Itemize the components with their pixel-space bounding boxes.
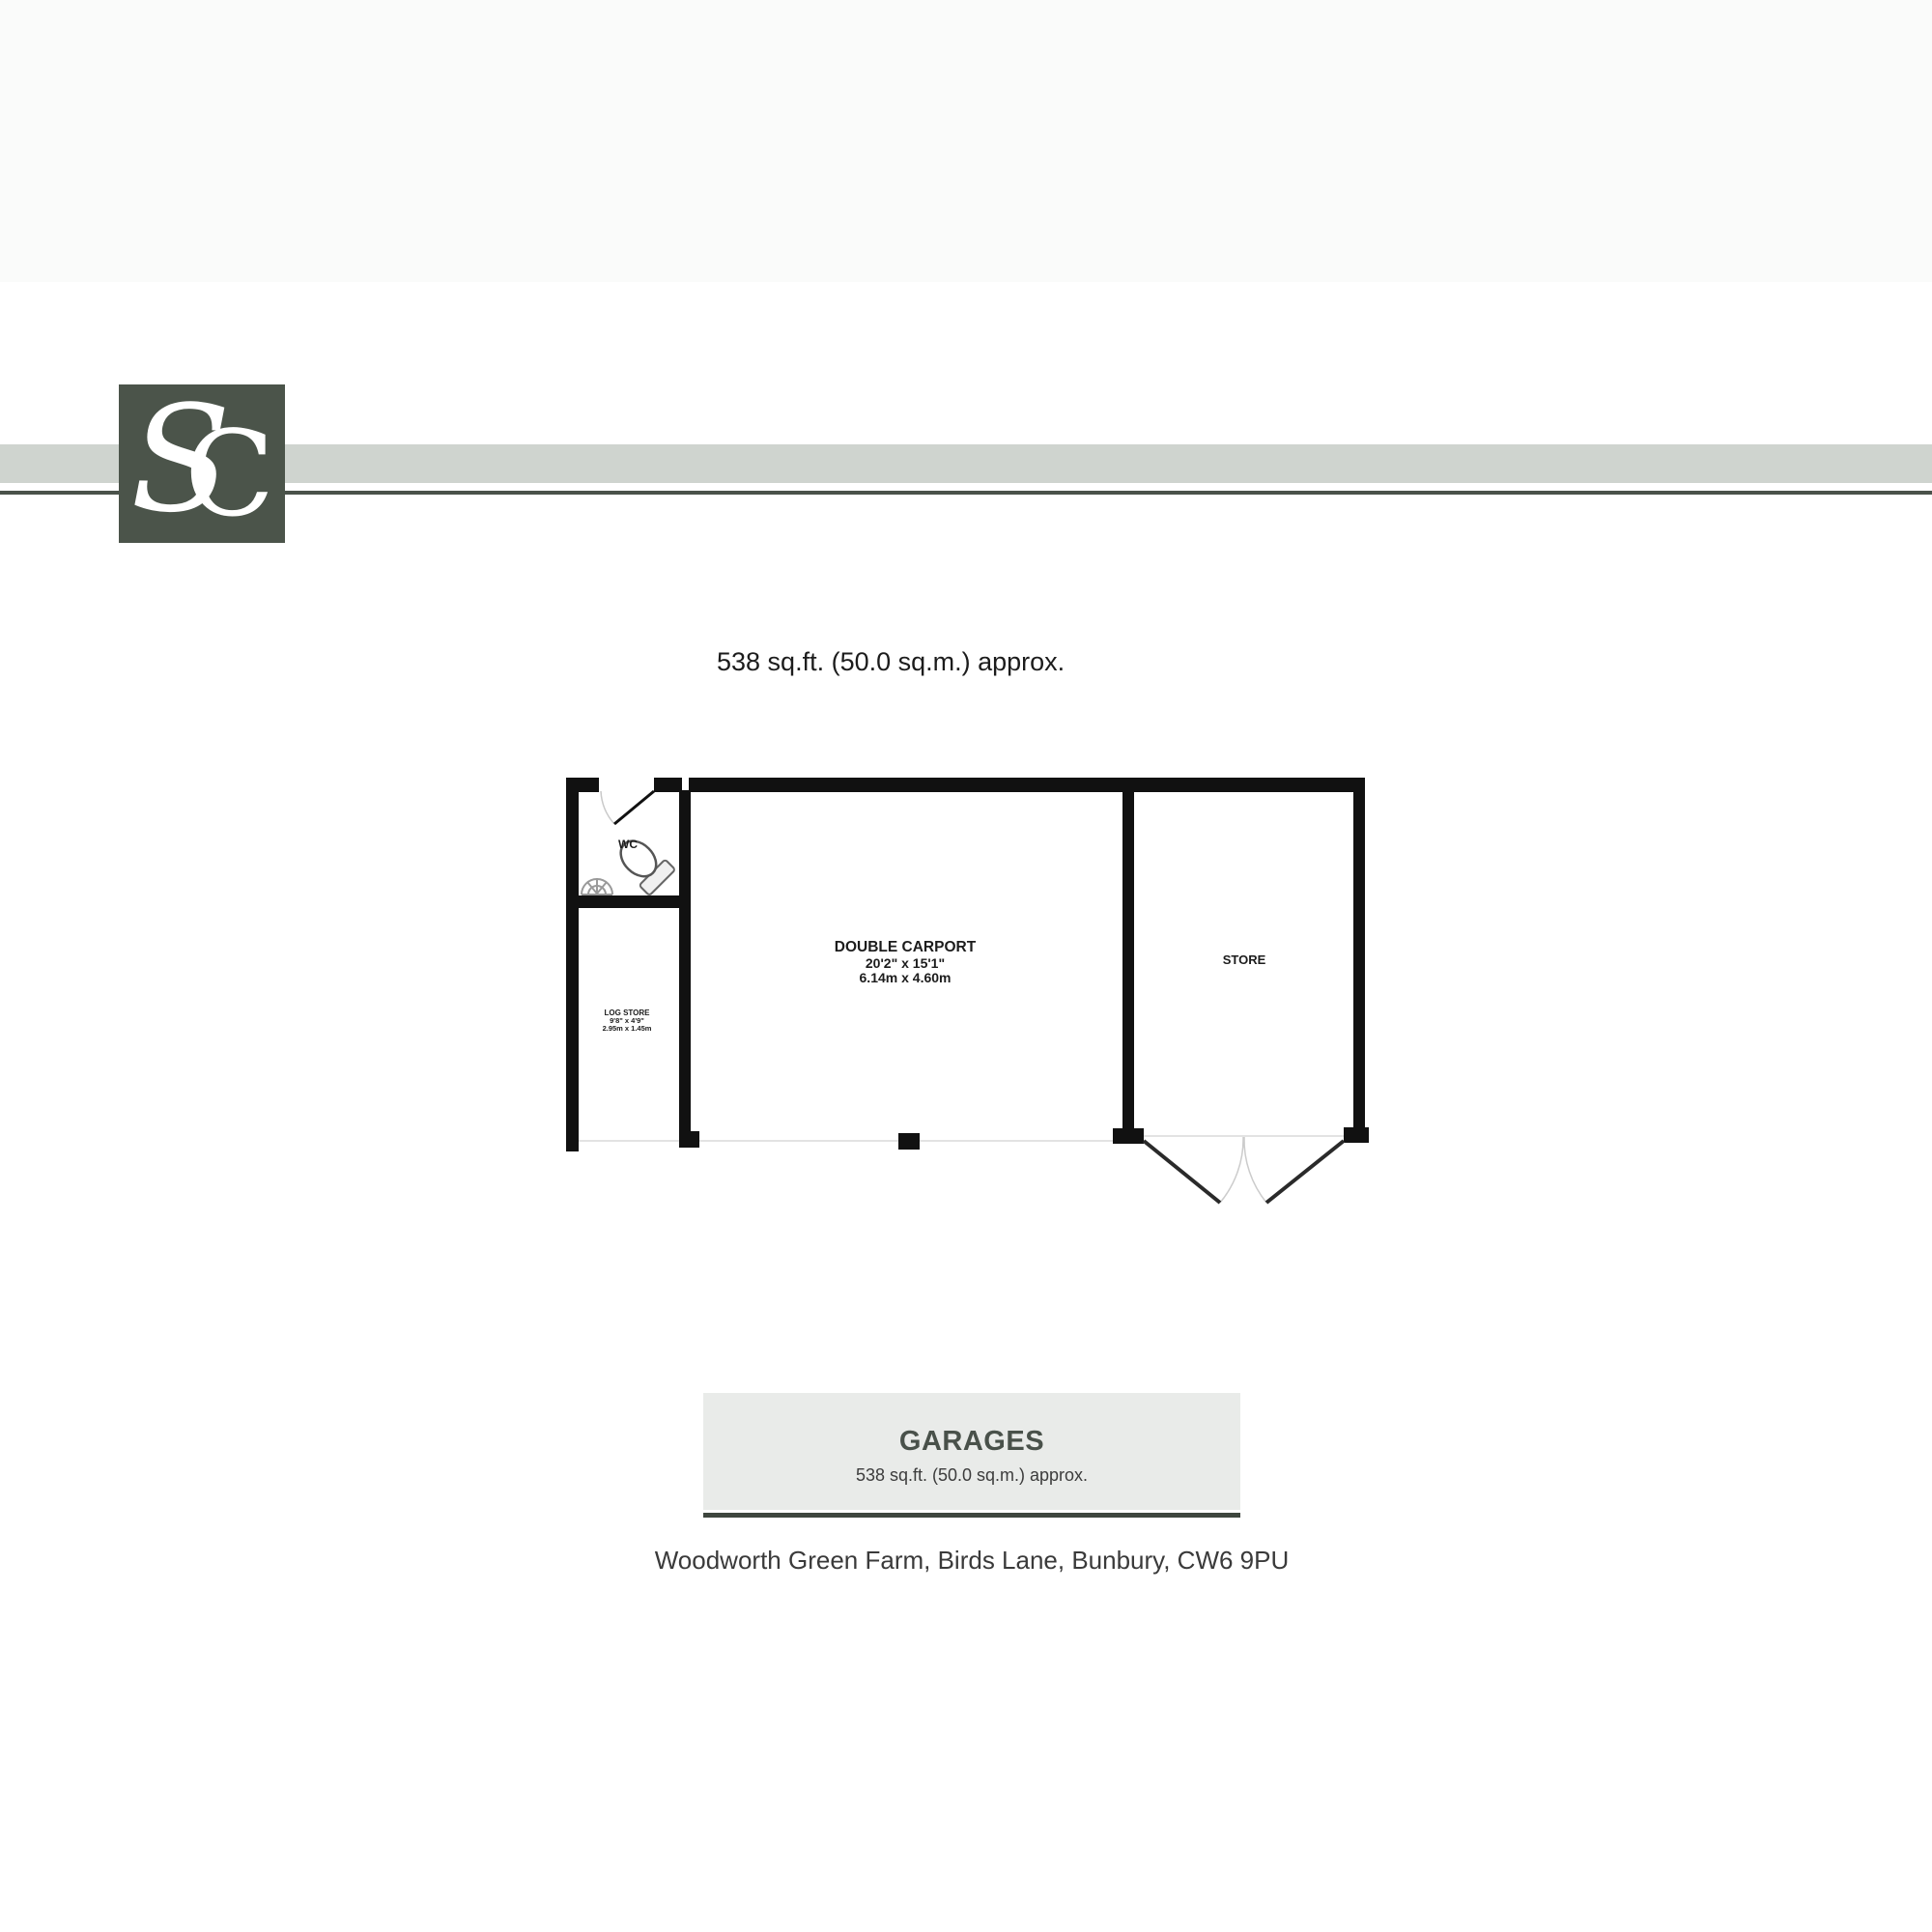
- carport-dims-metric: 6.14m x 4.60m: [860, 970, 952, 985]
- pier-divider-carport-store: [1113, 1128, 1144, 1144]
- logo-letter-s: S: [130, 386, 231, 533]
- room-label-wc: WC: [618, 838, 638, 851]
- wall-top-main: [689, 778, 1365, 792]
- wall-left: [566, 778, 579, 1151]
- store-door-arc-right: [1244, 1137, 1266, 1203]
- brand-stripe-line: [0, 491, 1932, 495]
- caption-title: GARAGES: [703, 1426, 1240, 1458]
- agency-logo: C S: [119, 384, 285, 543]
- log-store-dims-metric: 2.95m x 1.45m: [603, 1024, 652, 1033]
- wall-divider-wc-carport: [679, 790, 691, 1132]
- caption-box: GARAGES 538 sq.ft. (50.0 sq.m.) approx.: [703, 1393, 1240, 1510]
- store-door-right: [1266, 1141, 1344, 1203]
- caption-underline: [703, 1513, 1240, 1518]
- wall-top-wc-segment: [654, 778, 682, 792]
- room-label-store: STORE: [1223, 952, 1266, 967]
- wc-door-arc: [601, 791, 614, 824]
- pier-divider-wc-carport: [679, 1131, 699, 1148]
- wc-door-leaf: [614, 791, 654, 824]
- caption-area: 538 sq.ft. (50.0 sq.m.) approx.: [703, 1465, 1240, 1486]
- carport-center-pillar: [898, 1133, 920, 1150]
- sink-icon: [582, 878, 612, 895]
- floorplan-svg: WC LOG STORE 9'8" x 4'9" 2.95m x 1.45m D…: [555, 763, 1377, 1222]
- wall-wc-bottom: [579, 895, 691, 908]
- pier-right: [1344, 1127, 1369, 1143]
- carport-dims-imperial: 20'2" x 15'1": [866, 955, 945, 971]
- store-door-arc-left: [1220, 1137, 1243, 1203]
- property-address: Woodworth Green Farm, Birds Lane, Bunbur…: [489, 1546, 1455, 1576]
- top-band: [0, 0, 1932, 282]
- brand-stripe: [0, 444, 1932, 483]
- store-door-left: [1144, 1141, 1220, 1203]
- wall-divider-carport-store: [1122, 790, 1134, 1128]
- area-summary: 538 sq.ft. (50.0 sq.m.) approx.: [717, 647, 1065, 677]
- room-label-double-carport: DOUBLE CARPORT: [835, 939, 977, 955]
- wall-right: [1353, 778, 1365, 1127]
